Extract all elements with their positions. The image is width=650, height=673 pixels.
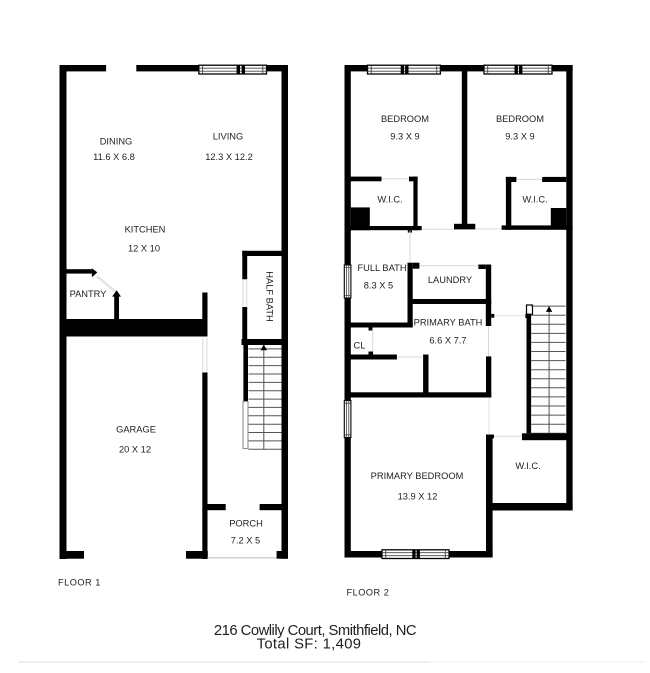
svg-text:9.3 X 9: 9.3 X 9 [390,132,419,142]
svg-text:HALF BATH: HALF BATH [265,271,275,321]
svg-text:8.3 X 5: 8.3 X 5 [364,281,393,291]
svg-text:GARAGE: GARAGE [116,425,156,435]
svg-text:FULL BATH: FULL BATH [357,263,406,273]
svg-text:9.3 X 9: 9.3 X 9 [505,132,534,142]
svg-text:BEDROOM: BEDROOM [381,114,429,124]
svg-text:DINING: DINING [100,137,133,147]
svg-text:12.3 X 12.2: 12.3 X 12.2 [205,152,253,162]
svg-text:LAUNDRY: LAUNDRY [428,275,472,285]
svg-text:LIVING: LIVING [213,132,243,142]
svg-text:CL: CL [354,341,366,351]
svg-text:13.9 X 12: 13.9 X 12 [398,492,438,502]
svg-text:6.6 X 7.7: 6.6 X 7.7 [429,336,466,346]
svg-text:KITCHEN: KITCHEN [125,225,166,235]
svg-text:PRIMARY BATH: PRIMARY BATH [414,318,483,328]
svg-text:7.2 X 5: 7.2 X 5 [231,536,260,546]
svg-text:W.I.C.: W.I.C. [515,461,540,471]
svg-text:FLOOR 1: FLOOR 1 [58,578,101,588]
svg-text:PANTRY: PANTRY [70,289,107,299]
svg-text:BEDROOM: BEDROOM [496,114,544,124]
svg-text:FLOOR 2: FLOOR 2 [347,588,390,598]
svg-text:W.I.C.: W.I.C. [377,195,402,205]
svg-text:PRIMARY BEDROOM: PRIMARY BEDROOM [371,471,464,481]
svg-text:PORCH: PORCH [229,519,263,529]
svg-text:W.I.C.: W.I.C. [522,195,547,205]
svg-text:20 X 12: 20 X 12 [119,445,151,455]
svg-text:Total SF: 1,409: Total SF: 1,409 [257,637,362,653]
svg-text:11.6 X 6.8: 11.6 X 6.8 [93,152,135,162]
svg-text:12 X 10: 12 X 10 [128,244,160,254]
